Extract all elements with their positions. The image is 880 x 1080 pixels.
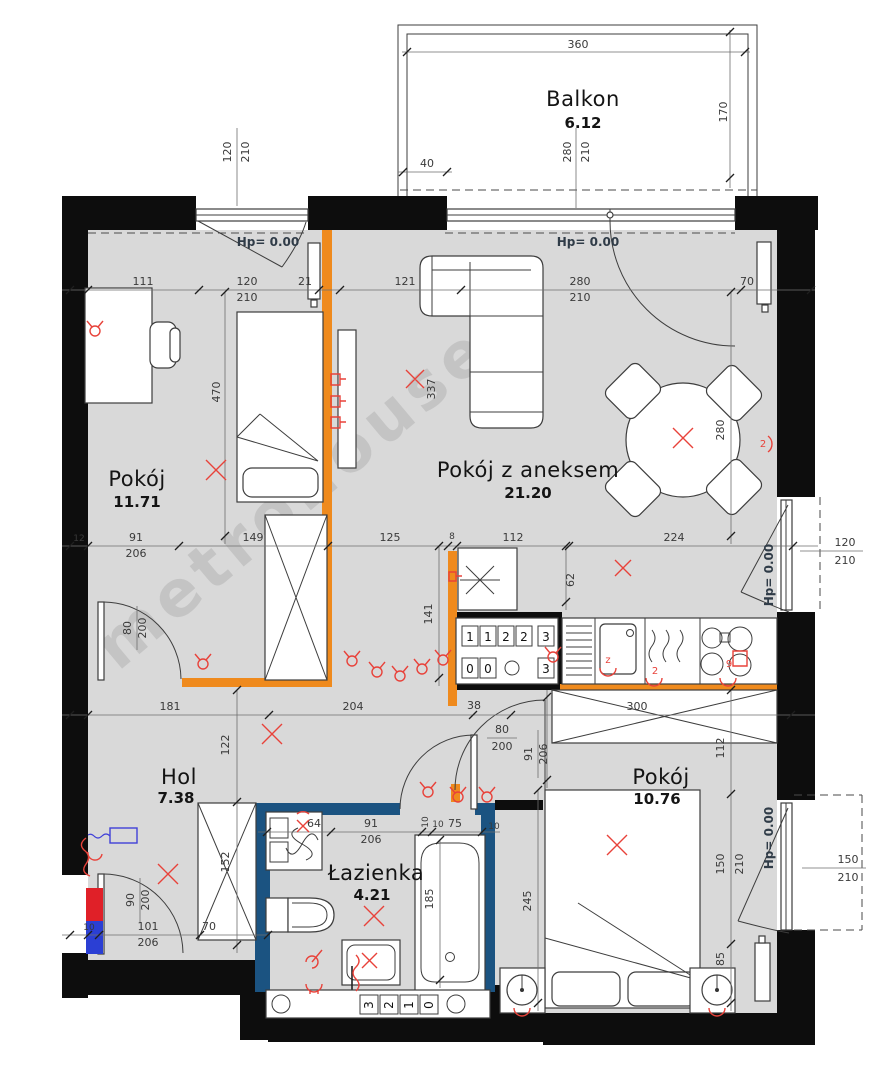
dim: 152 [219,852,232,873]
dim: 210 [835,554,856,567]
shaft-number: 1 [402,1001,416,1009]
sink [600,624,636,674]
dim: 360 [568,38,589,51]
dim: 200 [136,618,149,639]
dim: 210 [733,854,746,875]
shaft-number: 0 [484,662,492,676]
dim: 10 [432,820,444,830]
level-mark: Hp= 0.00 [557,235,619,249]
shaft-number: 2 [382,1001,396,1009]
dim: 200 [492,740,513,753]
dim: 210 [237,291,258,304]
dim: 200 [139,890,152,911]
room-label-balkon: Balkon [546,87,620,111]
dim: 101 [138,920,159,933]
radiator-salon [757,242,771,304]
bathtub [415,835,485,992]
desk [85,288,152,403]
dim: 210 [838,871,859,884]
dim: 280 [561,142,574,163]
toilet [266,898,334,932]
shaft-number: 0 [466,662,474,676]
dim: 85 [714,952,727,966]
dim: 75 [448,817,462,830]
shaft-number: 3 [542,630,550,644]
dim: 80 [495,723,509,736]
room-area-hol: 7.38 [157,789,194,807]
red-label-burners: 9 [726,659,732,670]
dim: 111 [133,275,154,288]
dim: 90 [124,893,137,907]
shaft-number: 3 [362,1001,376,1009]
room-area-balkon: 6.12 [564,114,601,132]
room-area-pokoj-b: 10.76 [633,790,680,808]
dim: 21 [298,275,312,288]
shaft-number: 3 [542,662,550,676]
pillow [552,972,620,1006]
room-label-hol: Hol [161,765,197,789]
dim: 280 [714,420,727,441]
dim: 150 [714,854,727,875]
lower-shaft-strip [266,990,490,1018]
dim: 204 [343,700,364,713]
dim: 210 [239,142,252,163]
dim: 149 [243,531,264,544]
dim: 337 [425,379,438,400]
dim: 80 [121,621,134,635]
dim: 206 [537,744,550,765]
room-area-pokoj-a: 11.71 [113,493,160,511]
dim: 470 [210,382,223,403]
dim: 210 [579,142,592,163]
shaft-number: 2 [502,630,510,644]
floor-plan-page: metrohouse [0,0,880,1080]
dim: 150 [838,853,859,866]
dim: 120 [221,142,234,163]
red-label-hob: 2 [652,666,658,677]
dim: 70 [740,275,754,288]
dim: 112 [714,738,727,759]
room-label-salon: Pokój z aneksem [437,458,619,482]
dim: 181 [160,700,181,713]
shaft-number: 0 [422,1001,436,1009]
red-label-wall: 2 [760,439,766,450]
dim: 280 [570,275,591,288]
dim: 206 [361,833,382,846]
dim: 8 [449,532,455,542]
dim: 206 [138,936,159,949]
desk-chair-back [170,328,180,362]
dim: 64 [307,817,321,830]
pillow [243,468,318,497]
dim: 91 [364,817,378,830]
room-label-lazienka: Łazienka [327,861,424,885]
bed-double [545,790,700,1008]
dim: 91 [129,531,143,544]
level-mark: Hp= 0.00 [762,807,776,869]
dim: 10 [488,822,500,832]
dim: 210 [570,291,591,304]
shaft-number: 1 [466,630,474,644]
dim: 300 [627,700,648,713]
shaft-number: 1 [484,630,492,644]
dim: 40 [420,157,434,170]
dim: 170 [717,102,730,123]
room-area-lazienka: 4.21 [353,886,390,904]
dim: 141 [422,604,435,625]
fridge-cabinet [458,548,517,610]
dim: 38 [467,699,481,712]
red-label-sink: z [605,655,610,666]
dim: 185 [423,889,436,910]
dim: 12 [73,534,84,544]
entrance-marker-red [86,888,103,921]
level-mark: Hp= 0.00 [762,544,776,606]
dim: 245 [521,891,534,912]
room-label-pokoj-b: Pokój [632,765,689,789]
room-area-salon: 21.20 [504,484,551,502]
dim: 91 [522,747,535,761]
dim: 121 [395,275,416,288]
floor-plan-drawing: metrohouse [0,0,880,1080]
dim: 112 [503,531,524,544]
dim: 206 [126,547,147,560]
dim: 120 [835,536,856,549]
shaft-number: 2 [520,630,528,644]
dim: 120 [237,275,258,288]
dim: 122 [219,735,232,756]
room-label-pokoj-a: Pokój [108,467,165,491]
dim: 70 [202,920,216,933]
bed-single [237,312,323,502]
level-mark: Hp= 0.00 [237,235,299,249]
dim: 125 [380,531,401,544]
radiator-bedroom [755,943,770,1001]
dim: 62 [564,573,577,587]
dim: 10 [83,923,95,933]
dim: 224 [664,531,685,544]
dim: 10 [421,816,431,828]
